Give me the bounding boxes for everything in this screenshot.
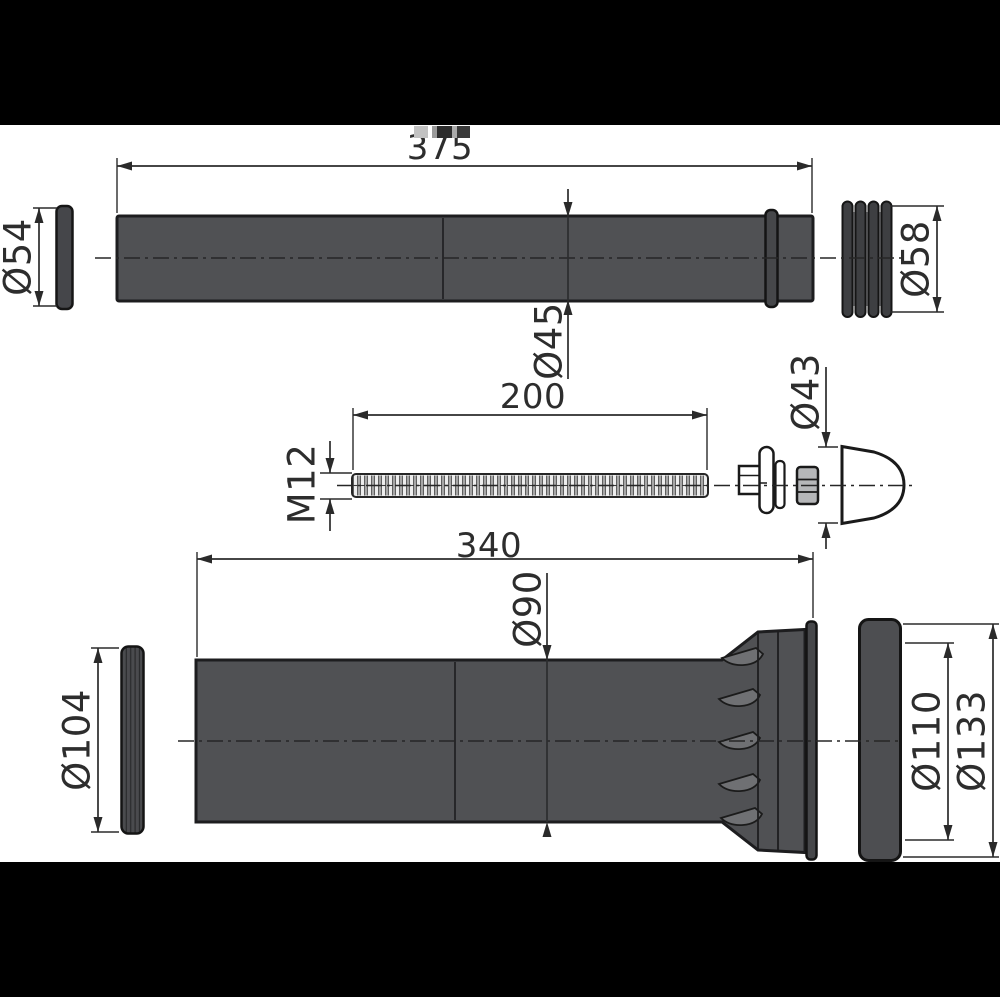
top-pipe-view — [57, 202, 907, 318]
flat-gasket-disc — [57, 206, 73, 309]
bottom-pipe-view — [122, 620, 904, 861]
flange-washer — [760, 447, 774, 513]
ribbed-sleeve — [843, 202, 892, 318]
drawing-page: 375 Ø54 Ø45 Ø58 200 M12 Ø43 340 Ø90 Ø104… — [0, 0, 1000, 1000]
top-black-band — [0, 0, 1000, 125]
sleeve-diameter-label: Ø58 — [898, 220, 935, 298]
diagram-canvas — [0, 0, 1000, 1000]
top-gasket-diameter-label: Ø54 — [0, 218, 37, 296]
bottom-black-band — [0, 862, 1000, 997]
flat-washer — [776, 461, 785, 508]
collar-inner-diameter-label: Ø110 — [909, 690, 946, 792]
bottom-pipe-diameter-label: Ø90 — [510, 570, 547, 648]
watermark-artifact — [414, 126, 470, 138]
cone-diameter-label: Ø43 — [788, 353, 825, 431]
rod-thread-label: M12 — [284, 444, 321, 525]
bottom-gasket-diameter-label: Ø104 — [59, 689, 96, 791]
threaded-rod-view — [337, 447, 914, 524]
top-pipe-diameter-label: Ø45 — [531, 302, 568, 380]
collar-outer-diameter-label: Ø133 — [954, 690, 991, 792]
rod-length-label: 200 — [500, 380, 566, 414]
bottom-pipe-length-label: 340 — [456, 529, 522, 563]
ribbed-gasket — [122, 647, 144, 834]
sealing-ring — [860, 620, 901, 861]
